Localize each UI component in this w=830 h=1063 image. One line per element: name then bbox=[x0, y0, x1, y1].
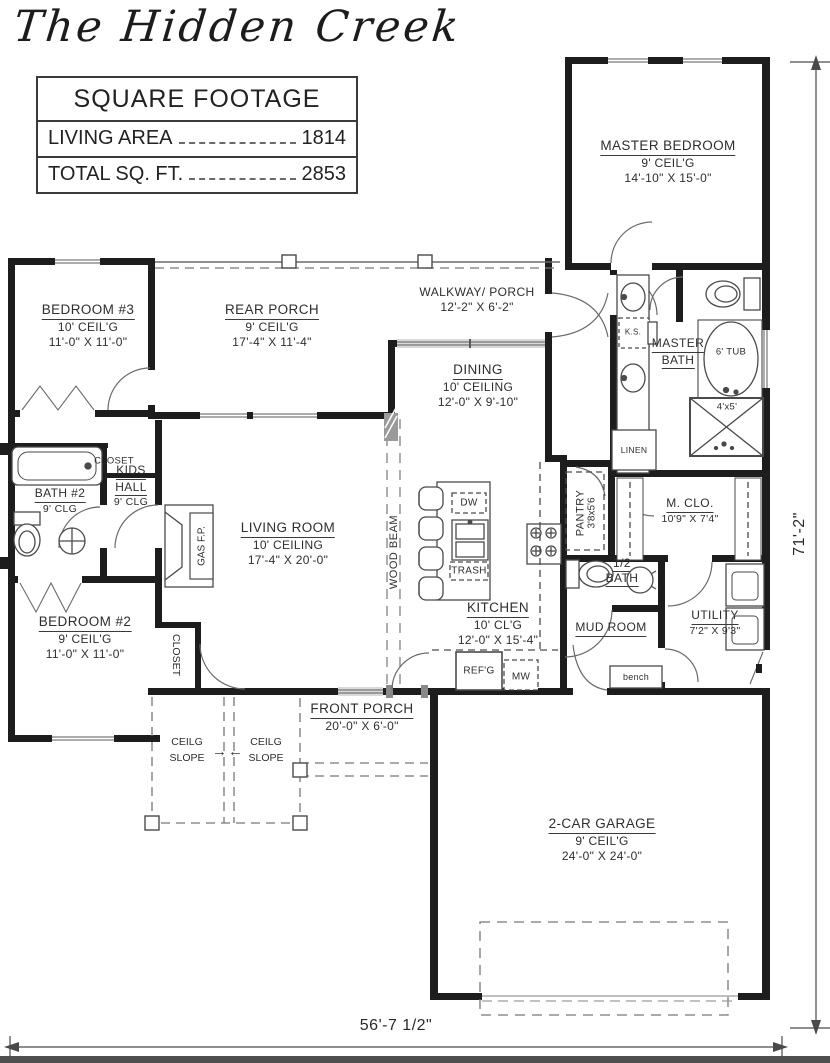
knee-space-label: K.S. bbox=[625, 328, 641, 337]
toilet-icon bbox=[706, 278, 760, 310]
room-label-rear-porch: REAR PORCH 9' CEIL'G 17'-4" X 11'-4" bbox=[225, 302, 319, 350]
gas-fireplace-label: GAS F.P. bbox=[197, 526, 208, 566]
room-label-half-bath: 1/2 BATH bbox=[606, 557, 639, 587]
ceiling-slope-note: CEILG SLOPE bbox=[248, 735, 283, 767]
room-label-kitchen: KITCHEN 10' CL'G 12'-0" X 15'-4" bbox=[458, 600, 538, 648]
room-label-living-room: LIVING ROOM 10' CEILING 17'-4" X 20'-0" bbox=[241, 520, 335, 568]
room-label-bedroom-3: BEDROOM #3 10' CEIL'G 11'-0" X 11'-0" bbox=[42, 302, 135, 350]
shower-size-label: 4'x5' bbox=[717, 402, 737, 413]
wood-beam-label: WOOD BEAM bbox=[388, 515, 400, 589]
garage-door-area bbox=[480, 922, 738, 1015]
room-label-front-porch: FRONT PORCH 20'-0" X 6'-0" bbox=[310, 701, 413, 734]
bathtub-icon bbox=[698, 320, 762, 402]
room-label-walkway-porch: WALKWAY/ PORCH 12'-2" X 6'-2" bbox=[419, 285, 534, 314]
dishwasher-label: DW bbox=[460, 498, 477, 509]
room-label-dining: DINING 10' CEILING 12'-0" X 9'-10" bbox=[438, 362, 518, 410]
dimension-lines bbox=[4, 55, 830, 1058]
kitchen-sink bbox=[452, 520, 488, 560]
sheet-edge bbox=[0, 1056, 830, 1063]
room-label-bath-2: BATH #2 9' CLG bbox=[35, 486, 86, 515]
overall-width-dimension: 56'-7 1/2" bbox=[360, 1017, 432, 1035]
porch-posts bbox=[145, 763, 307, 830]
tub-label: 6' TUB bbox=[716, 347, 746, 358]
closet-label: CLOSET bbox=[170, 634, 182, 676]
trash-label: TRASH bbox=[451, 566, 486, 577]
bench-label: bench bbox=[623, 672, 649, 682]
room-label-utility: UTILITY 7'2" X 9'3" bbox=[690, 608, 741, 637]
overall-depth-dimension: 71'-2" bbox=[791, 512, 809, 556]
arrow-right-icon: → bbox=[212, 743, 227, 760]
refrigerator-label: REF'G bbox=[463, 666, 494, 677]
toilet-icon bbox=[14, 512, 40, 556]
closet-label: CLOSET bbox=[94, 456, 134, 467]
sink-icon bbox=[59, 528, 85, 554]
ceiling-slope-note: CEILG SLOPE bbox=[169, 735, 204, 767]
bathtub-icon bbox=[12, 447, 102, 485]
room-label-pantry: PANTRY 3'8x5'6 bbox=[575, 490, 598, 537]
room-label-master-bath: MASTER BATH bbox=[652, 336, 704, 369]
porch-post bbox=[418, 255, 432, 268]
arrow-left-icon: ← bbox=[228, 743, 243, 760]
room-label-master-closet: M. CLO. 10'9" X 7'4" bbox=[661, 496, 718, 525]
room-label-kids-hall: KIDS HALL 9' CLG bbox=[114, 463, 148, 509]
room-label-bedroom-2: BEDROOM #2 9' CEIL'G 11'-0" X 11'-0" bbox=[39, 614, 132, 662]
linen-label: LINEN bbox=[621, 445, 648, 455]
room-label-master-bedroom: MASTER BEDROOM 9' CEIL'G 14'-10" X 15'-0… bbox=[600, 138, 735, 186]
range-icon bbox=[527, 524, 561, 564]
rear-porch-edge bbox=[155, 255, 560, 268]
room-label-garage: 2-CAR GARAGE 9' CEIL'G 24'-0" X 24'-0" bbox=[549, 816, 656, 864]
porch-post bbox=[282, 255, 296, 268]
floor-plan-sheet: The Hidden Creek SQUARE FOOTAGE LIVING A… bbox=[0, 0, 830, 1063]
microwave-label: MW bbox=[512, 672, 530, 683]
room-label-mud-room: MUD ROOM bbox=[575, 620, 646, 637]
